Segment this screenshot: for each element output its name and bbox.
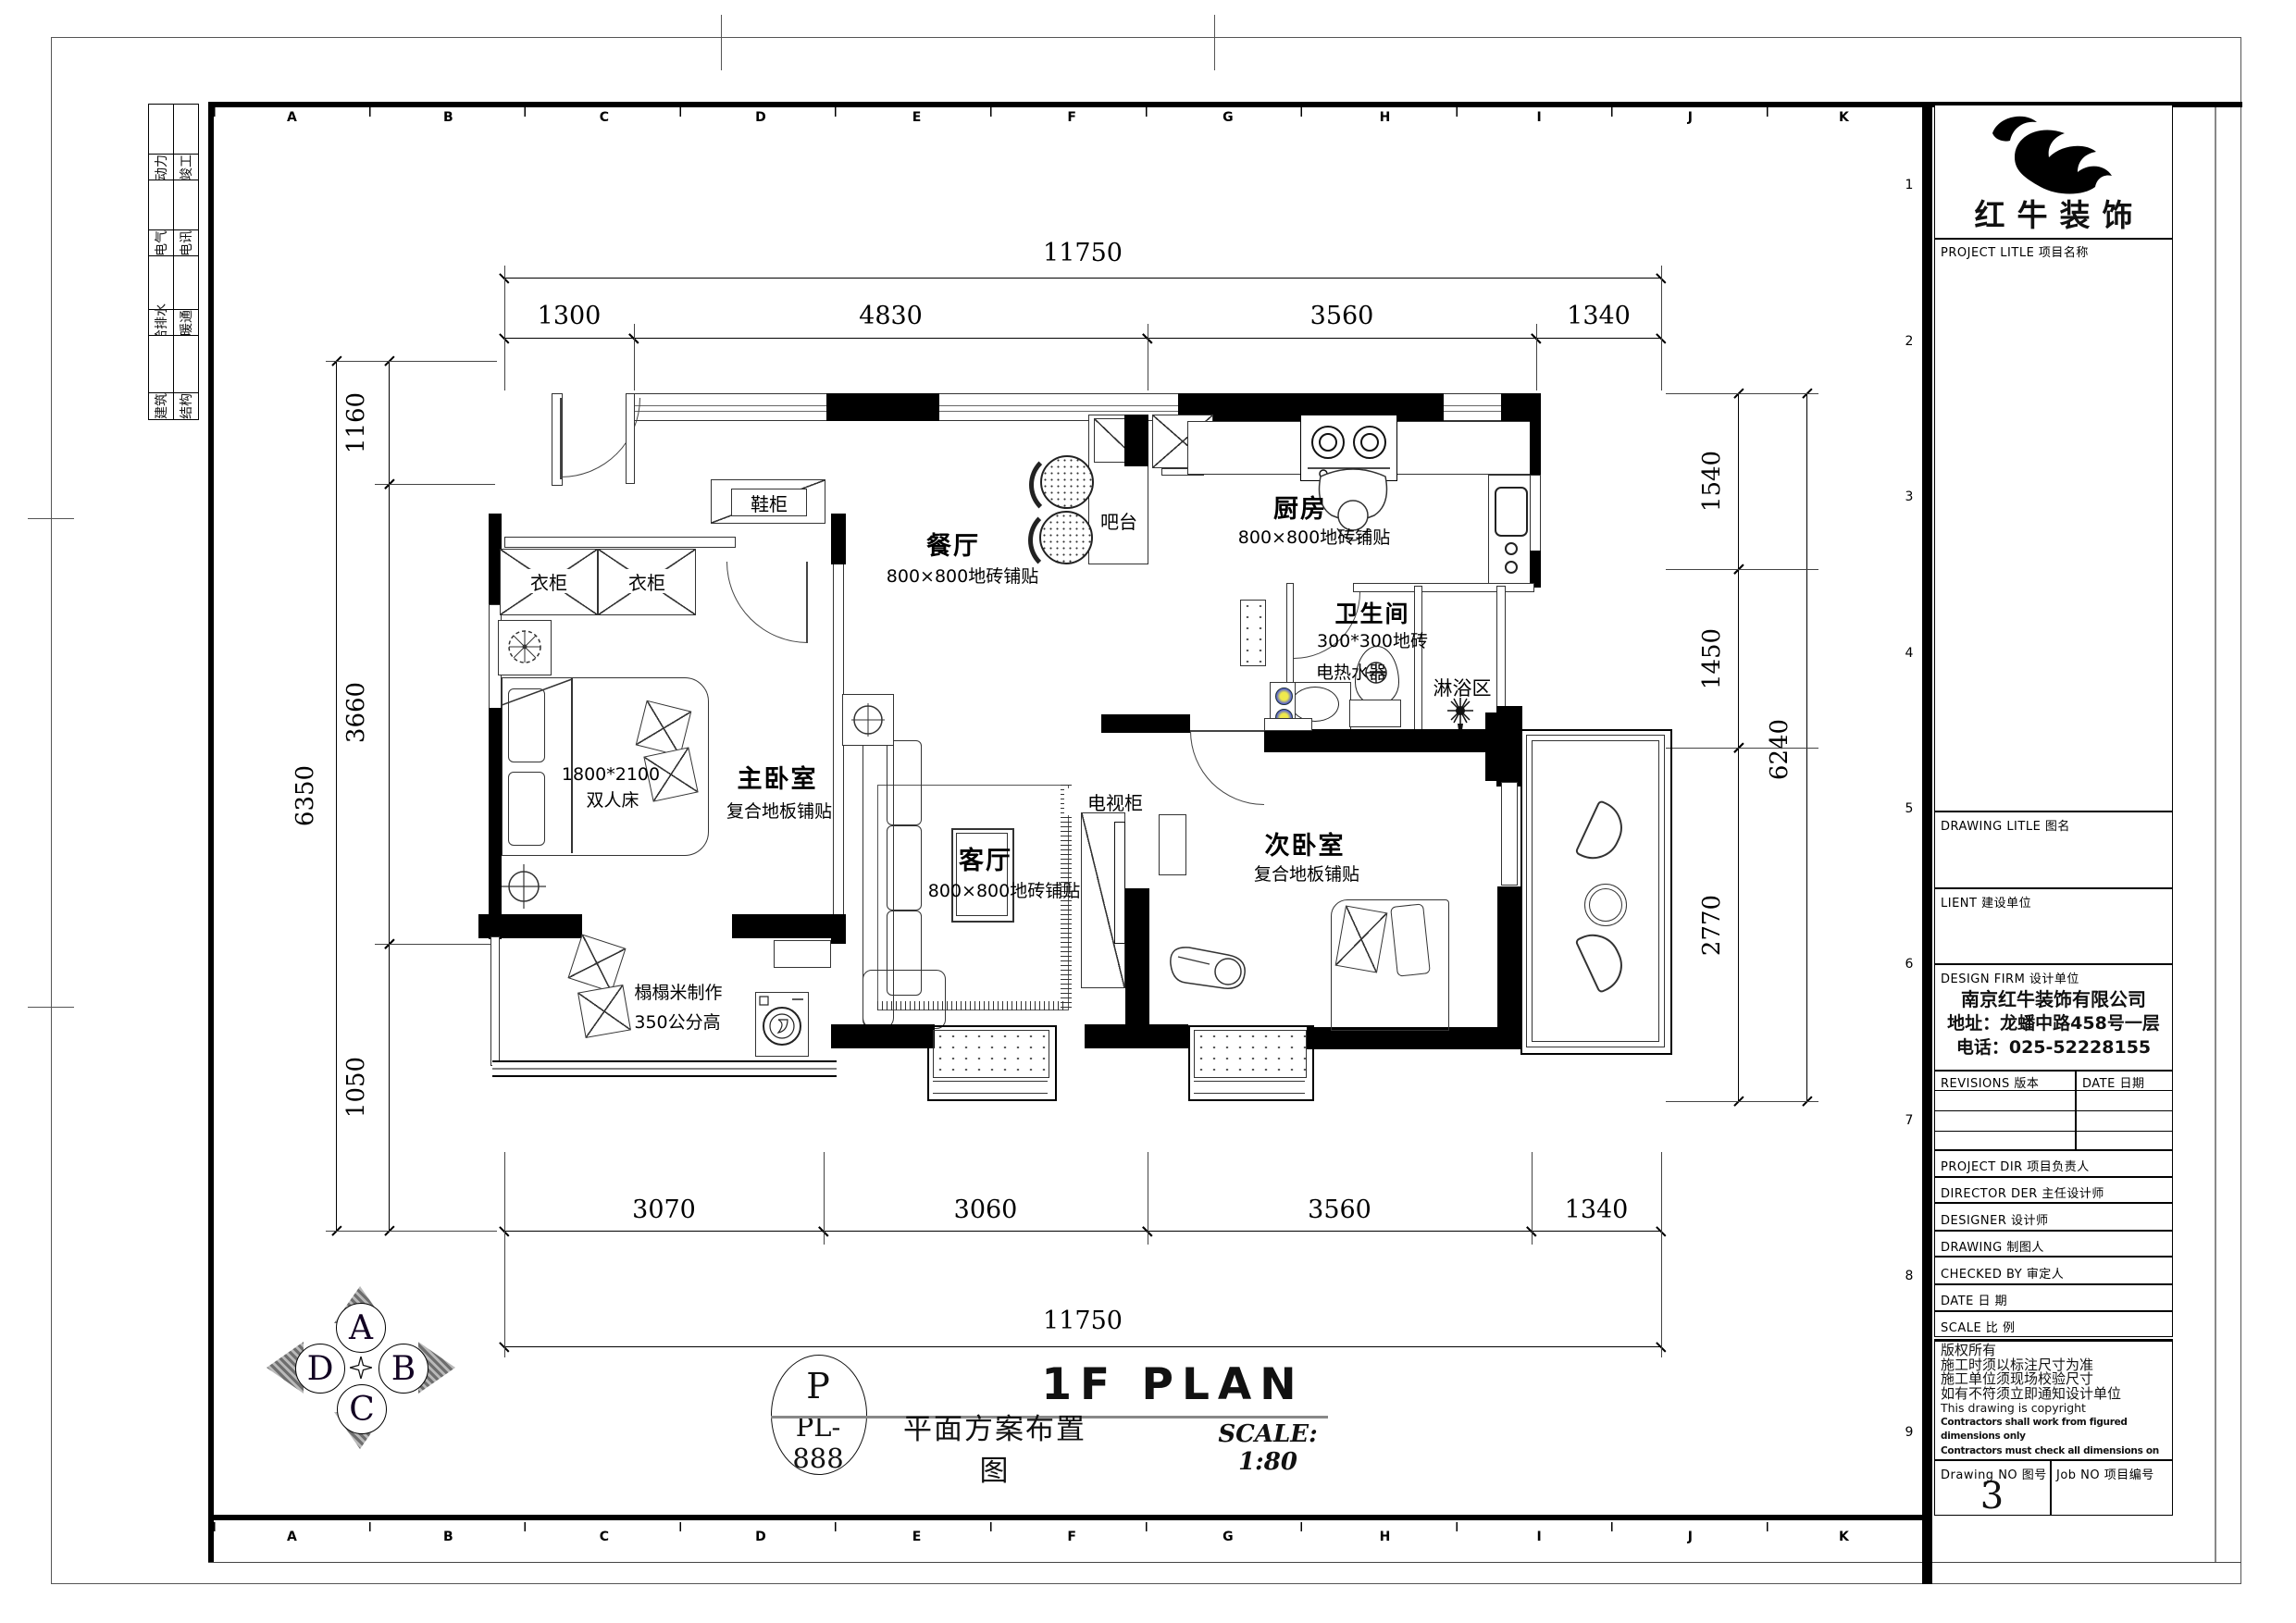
- fold-mark: [28, 1007, 74, 1008]
- design-firm-name: 南京红牛装饰有限公司: [1934, 986, 2173, 1009]
- wall-segment: [732, 914, 831, 938]
- drawing-sheet: 动力 竣工 电气 电讯 给排水 暖通 建筑 结构 ABCDEFGHIJK ABC…: [0, 0, 2296, 1623]
- plant-icon: [503, 626, 546, 668]
- side-table-icon: [848, 700, 888, 740]
- tatami-label: 榻榻米制作: [618, 979, 738, 1004]
- wall-segment: [1101, 714, 1190, 733]
- plan-title-cn: 平面方案布置图: [902, 1427, 1087, 1468]
- dimension-value: 1540: [1698, 451, 1726, 512]
- dimension-value: 3660: [342, 682, 370, 743]
- dimension-value: 1160: [342, 391, 370, 452]
- wall-segment: [490, 936, 500, 1066]
- wall-hatch: [1240, 600, 1266, 666]
- door-leaf: [1190, 730, 1264, 732]
- fold-mark: [1214, 15, 1215, 70]
- room-label-living: 客厅: [916, 840, 1055, 876]
- toilet-flush-icon: [1360, 657, 1392, 688]
- wall-segment: [1124, 415, 1148, 466]
- wall-segment: [1530, 551, 1541, 588]
- wall-window: [1501, 782, 1518, 886]
- revisions-row-line: [1934, 1131, 2173, 1132]
- wall-segment: [1530, 421, 1541, 477]
- wardrobe-label: 衣柜: [616, 569, 677, 593]
- field-label: CHECKED BY 审定人: [1941, 1264, 2064, 1282]
- discipline-label: 动力: [152, 155, 170, 180]
- wall-segment: [1353, 583, 1534, 592]
- grid-numbers-right: 123456789: [1899, 107, 1919, 1510]
- wall-segment: [478, 914, 582, 938]
- tatami-height-label: 350公分高: [622, 1009, 733, 1034]
- dimension-value: 6350: [292, 765, 319, 826]
- wall-segment: [831, 914, 846, 944]
- field-label: Job NO 项目编号: [2056, 1465, 2154, 1482]
- wall-segment: [831, 1024, 935, 1048]
- drawing-number-value: 3: [1934, 1477, 2050, 1516]
- bay-window-hatch: [933, 1030, 1049, 1078]
- discipline-label: 结构: [177, 393, 195, 419]
- pillow: [508, 772, 545, 846]
- dimension-value: 1340: [1536, 302, 1661, 330]
- room-finish-dining: 800×800地砖铺贴: [861, 563, 1064, 588]
- room-label-second-bedroom: 次卧室: [1231, 825, 1379, 861]
- design-firm-address: 地址：龙蟠中路458号一层: [1934, 1010, 2173, 1033]
- wall-segment: [831, 514, 846, 564]
- dimension-value: 4830: [634, 302, 1148, 330]
- revisions-row-line: [1934, 1110, 2173, 1111]
- wardrobe-label: 衣柜: [518, 569, 579, 593]
- discipline-label: 电气: [152, 230, 170, 256]
- title-bubble-code: PL-888: [771, 1419, 865, 1466]
- wall-segment: [1497, 886, 1520, 1030]
- margin-line: [208, 1562, 2241, 1563]
- fixture-dot: [1275, 688, 1293, 705]
- bed-type-label: 双人床: [566, 787, 659, 811]
- field-label: DATE 日期: [2082, 1073, 2144, 1091]
- field-label: DATE 日 期: [1941, 1291, 2007, 1308]
- wall-segment: [626, 393, 635, 484]
- wall-segment: [1485, 712, 1522, 781]
- bay-window-sill: [933, 1081, 1048, 1094]
- dimension-value: 11750: [1009, 1307, 1157, 1335]
- room-finish-second-bedroom: 复合地板铺贴: [1223, 861, 1390, 886]
- kitchen-sink-icon: [1488, 475, 1534, 586]
- wall-segment: [1125, 888, 1149, 1025]
- dimension-value: 3560: [1148, 1196, 1532, 1224]
- project-title-box: [1934, 239, 2173, 811]
- shoe-cabinet-label: 鞋柜: [731, 489, 807, 516]
- room-finish-master: 复合地板铺贴: [696, 798, 863, 823]
- bay-window-hatch: [1194, 1030, 1307, 1078]
- pillow: [508, 688, 545, 762]
- wall-segment: [1501, 393, 1541, 421]
- field-label: DRAWING 制图人: [1941, 1237, 2044, 1255]
- grid-letters-top: ABCDEFGHIJK: [214, 109, 1922, 126]
- fold-mark: [28, 518, 74, 519]
- dimension-value: 6240: [1766, 719, 1793, 780]
- room-label-bathroom: 卫生间: [1303, 596, 1442, 629]
- washing-machine-icon: [755, 992, 809, 1057]
- dimension-value: 3560: [1148, 302, 1536, 330]
- room-finish-kitchen: 800×800地砖铺贴: [1212, 524, 1416, 549]
- dimension-value: 1300: [504, 302, 634, 330]
- wall-segment: [504, 537, 736, 548]
- room-label-dining: 餐厅: [879, 526, 1027, 562]
- dimension-value: 1450: [1698, 628, 1726, 689]
- wall-segment: [1085, 1024, 1188, 1048]
- discipline-label: 暖通: [177, 310, 195, 336]
- balcony-table-inner: [1589, 888, 1622, 922]
- drawing-no-divider: [2050, 1460, 2052, 1516]
- fold-mark: [721, 15, 722, 70]
- room-label-kitchen: 厨房: [1231, 489, 1370, 525]
- field-label: PROJECT LITLE 项目名称: [1941, 242, 2089, 260]
- frame-border-bottom: [208, 1515, 1928, 1520]
- red-bull-logo-icon: [1976, 109, 2133, 194]
- plan-title-en: 1F PLAN: [1013, 1358, 1333, 1410]
- compass-label-a: A: [336, 1303, 386, 1353]
- field-label: REVISIONS 版本: [1941, 1073, 2039, 1091]
- compass-label-c: C: [337, 1384, 387, 1434]
- nightstand: [1159, 814, 1186, 875]
- field-label: LIENT 建设单位: [1941, 893, 2031, 911]
- logo-text: 红牛装饰: [1934, 192, 2173, 233]
- dimension-value: 3060: [824, 1196, 1148, 1224]
- margin-line: [2215, 102, 2216, 1562]
- field-label: DESIGNER 设计师: [1941, 1210, 2049, 1228]
- sink-basin: [1291, 687, 1339, 722]
- person-figure: [1161, 936, 1254, 997]
- frame-border-left: [208, 102, 214, 1562]
- fixture-box: [774, 940, 831, 968]
- wall-segment: [1264, 718, 1312, 731]
- discipline-label: 竣工: [177, 155, 195, 180]
- title-bubble-letter: P: [771, 1358, 865, 1414]
- dimension-value: 11750: [1009, 239, 1157, 267]
- field-label: DRAWING LITLE 图名: [1941, 816, 2070, 834]
- door-leaf: [806, 562, 808, 643]
- field-label: PROJECT DIR 项目负责人: [1941, 1157, 2090, 1174]
- toilet-seat-base: [1349, 700, 1401, 727]
- stool-back: [1028, 507, 1095, 574]
- plan-scale-note: SCALE: 1:80: [1194, 1432, 1342, 1464]
- discipline-label: 建筑: [152, 393, 170, 419]
- dimension-value: 3070: [504, 1196, 824, 1224]
- compass-star-icon: [350, 1357, 372, 1379]
- sofa-chaise: [863, 970, 946, 1029]
- design-firm-phone: 电话：025-52228155: [1934, 1035, 2173, 1057]
- room-label-master: 主卧室: [703, 759, 851, 795]
- field-label: DIRECTOR DER 主任设计师: [1941, 1183, 2104, 1201]
- bay-window-sill: [492, 1060, 837, 1077]
- frame-border-right: [1922, 102, 1932, 1584]
- dimension-value: 2770: [1698, 895, 1726, 956]
- crosshair-symbol: [500, 862, 548, 911]
- compass-label-d: D: [295, 1344, 345, 1394]
- sofa-cushion: [887, 740, 922, 825]
- tv-panel: [1114, 822, 1125, 944]
- field-label: SCALE 比 例: [1941, 1318, 2015, 1335]
- wall-segment: [1264, 729, 1522, 752]
- dimension-value: 1050: [342, 1057, 370, 1118]
- wall-segment: [826, 393, 939, 421]
- bar-label: 吧台: [1090, 507, 1148, 534]
- wall-window: [1530, 475, 1541, 552]
- bed-size-label: 1800*2100: [555, 764, 666, 785]
- grid-letters-bottom: ABCDEFGHIJK: [214, 1529, 1922, 1545]
- discipline-label: 电讯: [177, 230, 195, 256]
- tv-cabinet-label: 电视柜: [1064, 788, 1166, 815]
- room-finish-living: 800×800地砖铺贴: [902, 877, 1106, 902]
- bay-window-sill: [1194, 1081, 1305, 1094]
- dimension-value: 1340: [1532, 1196, 1661, 1224]
- compass-label-b: B: [379, 1344, 428, 1394]
